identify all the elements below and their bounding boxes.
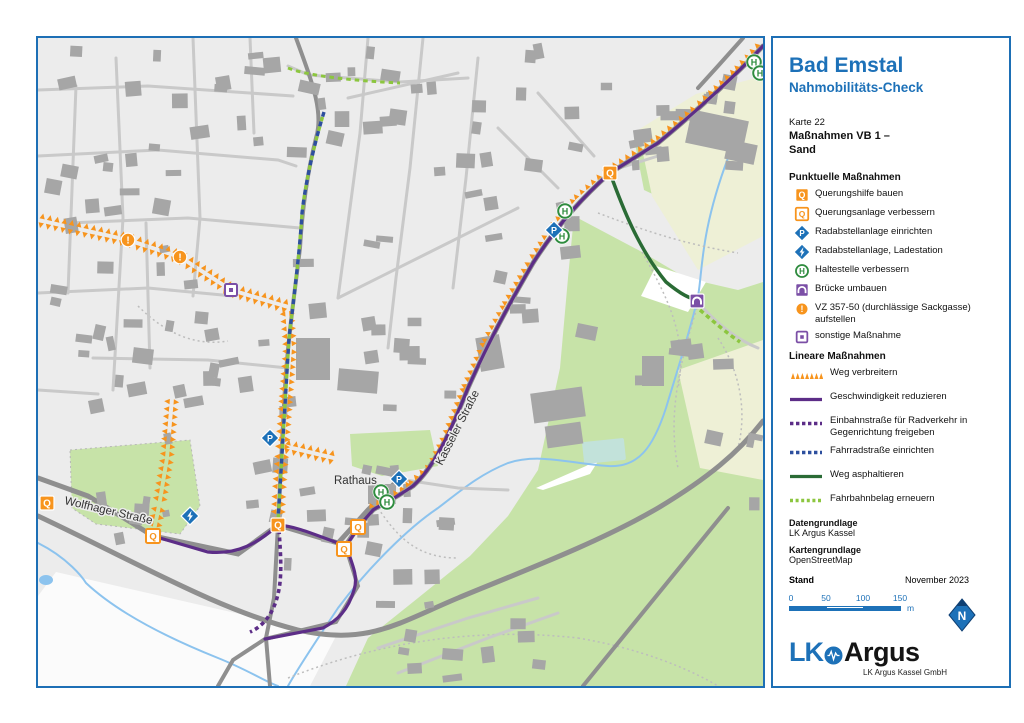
scale-tick: 0 [789,593,794,603]
svg-text:H: H [562,206,569,216]
legend-item-label: Weg asphaltieren [830,466,904,480]
legend-item-bike-parking: PRadabstellanlage einrichten [789,224,997,241]
address-line: Querallee 36 · D-34119 Kassel [789,685,997,688]
legend-panel: Bad Emstal Nahmobilitäts-Check Karte 22 … [771,36,1011,688]
legend-item-purple-solid: Geschwindigkeit reduzieren [789,389,997,410]
address-block: Querallee 36 · D-34119 Kassel Tel. 0561.… [789,685,997,688]
map-number: Karte 22 [789,117,997,128]
scale-ticks: 0 50 100 150 [789,593,907,604]
logo-argus-text: Argus [844,639,920,666]
scale-unit: m [907,603,914,613]
bus-stop-icon: H [752,65,763,80]
legend-item-label: Radabstellanlage einrichten [815,224,932,238]
q-filled-icon: Q [603,166,617,180]
legend-item-label: Fahrbahnbelag erneuern [830,490,935,504]
legend-item-label: Querungsanlage verbessern [815,205,935,219]
svg-text:!: ! [178,253,181,264]
svg-text:P: P [551,225,557,235]
bus-stop-icon: H [557,203,572,218]
svg-text:!: ! [801,304,804,314]
q-outline-icon: Q [146,529,160,543]
svg-text:Q: Q [799,209,806,219]
orange-triangles-swatch [789,370,823,381]
legend-item-label: Haltestelle verbessern [815,262,909,276]
legend-item-bike-charging: Radabstellanlage, Ladestation [789,243,997,260]
date-value: November 2023 [905,575,969,585]
lightgreen-dashed-swatch [789,495,823,506]
point-measures-list: QQuerungshilfe bauenQQuerungsanlage verb… [789,186,997,345]
base-map-block: Kartengrundlage OpenStreetMap [789,545,997,565]
base-map-value: OpenStreetMap [789,555,997,565]
scale-bar [789,606,901,611]
scale-bar-block: 0 50 100 150 m N [789,593,997,627]
svg-text:H: H [799,267,805,276]
bike-parking-icon: P [789,224,815,241]
legend-item-bridge: Brücke umbauen [789,281,997,298]
dead-end-sign-icon: ! [121,233,135,247]
bus-stop-icon: H [789,262,815,279]
linear-measures-heading: Lineare Maßnahmen [789,351,997,362]
bridge-icon [789,281,815,298]
map-sheet: Wolfhager StraßeKasseler StraßeRathaus H… [0,0,1024,723]
legend-item-blue-dashed: Fahrradstraße einrichten [789,442,997,463]
q-filled-icon: Q [40,496,54,510]
legend-item-label: Brücke umbauen [815,281,887,295]
map-canvas: Wolfhager StraßeKasseler StraßeRathaus H… [36,36,765,688]
legend-item-lightgreen-dashed: Fahrbahnbelag erneuern [789,490,997,511]
blue-dashed-swatch [789,447,823,458]
legend-item-label: Weg verbreitern [830,365,897,379]
legend-item-label: Geschwindigkeit reduzieren [830,389,947,403]
page-subtitle: Nahmobilitäts-Check [789,80,997,95]
purple-solid-swatch [789,394,823,405]
point-measures-heading: Punktuelle Maßnahmen [789,172,997,183]
logo-company-name: LK Argus Kassel GmbH [863,668,997,677]
scale-tick: 100 [856,593,870,603]
svg-text:Q: Q [354,523,361,534]
scale-tick: 150 [893,593,907,603]
bike-charging-icon [789,243,815,260]
data-source-block: Datengrundlage LK Argus Kassel [789,518,997,538]
map-graphic: Wolfhager StraßeKasseler StraßeRathaus H… [38,38,763,686]
svg-text:P: P [267,433,273,443]
q-outline-icon: Q [351,520,365,534]
scale-tick: 50 [821,593,830,603]
bus-stop-icon: H [379,494,394,509]
svg-text:H: H [757,68,763,78]
purple-dashed-swatch [789,418,823,429]
data-source-heading: Datengrundlage [789,518,997,528]
base-map-heading: Kartengrundlage [789,545,997,555]
company-logo: LK Argus [789,639,997,666]
legend-item-bus-stop: HHaltestelle verbessern [789,262,997,279]
map-title: Maßnahmen VB 1 – Sand [789,129,997,158]
street-label: Rathaus [334,475,377,487]
logo-waveform-icon [824,646,843,665]
legend-item-label: Fahrradstraße einrichten [830,442,934,456]
legend-item-label: Einbahnstraße für Radverkehr in Gegenric… [830,413,997,439]
legend-item-green-solid: Weg asphaltieren [789,466,997,487]
date-heading: Stand [789,575,814,585]
svg-text:Q: Q [274,521,282,532]
q-outline-icon: Q [337,542,351,556]
svg-text:Q: Q [799,190,806,200]
legend-item-q-filled: QQuerungshilfe bauen [789,186,997,203]
svg-text:Q: Q [43,499,51,510]
legend-item-orange-triangles: Weg verbreitern [789,365,997,386]
dead-end-sign-icon: ! [173,250,187,264]
q-filled-icon: Q [789,186,815,203]
misc-measure-icon [789,328,815,345]
logo-lk-text: LK [789,639,823,666]
legend-item-dead-end-sign: !VZ 357-50 (durchlässige Sackgasse) aufs… [789,300,997,326]
legend-item-q-outline: QQuerungsanlage verbessern [789,205,997,222]
legend-item-label: sonstige Maßnahme [815,328,901,342]
legend-item-label: VZ 357-50 (durchlässige Sackgasse) aufst… [815,300,997,326]
svg-text:P: P [396,474,402,484]
dead-end-sign-icon: ! [789,300,815,317]
green-solid-swatch [789,471,823,482]
linear-measures-list: Weg verbreiternGeschwindigkeit reduziere… [789,365,997,511]
svg-text:!: ! [126,236,129,247]
legend-item-label: Querungshilfe bauen [815,186,903,200]
legend-item-purple-dashed: Einbahnstraße für Radverkehr in Gegenric… [789,413,997,439]
q-filled-icon: Q [271,518,285,532]
legend-item-label: Radabstellanlage, Ladestation [815,243,943,257]
north-arrow-icon: N [945,597,979,633]
svg-text:P: P [799,229,805,238]
bridge-icon [690,294,704,308]
page-title: Bad Emstal [789,54,997,78]
date-block: Stand November 2023 [789,575,997,585]
legend-item-misc-measure: sonstige Maßnahme [789,328,997,345]
svg-text:Q: Q [149,532,156,543]
svg-text:N: N [958,609,967,623]
svg-text:Q: Q [340,545,347,556]
misc-measure-icon [225,284,237,296]
q-outline-icon: Q [789,205,815,222]
data-source-value: LK Argus Kassel [789,528,997,538]
svg-text:Q: Q [606,169,614,180]
svg-text:H: H [384,497,391,507]
